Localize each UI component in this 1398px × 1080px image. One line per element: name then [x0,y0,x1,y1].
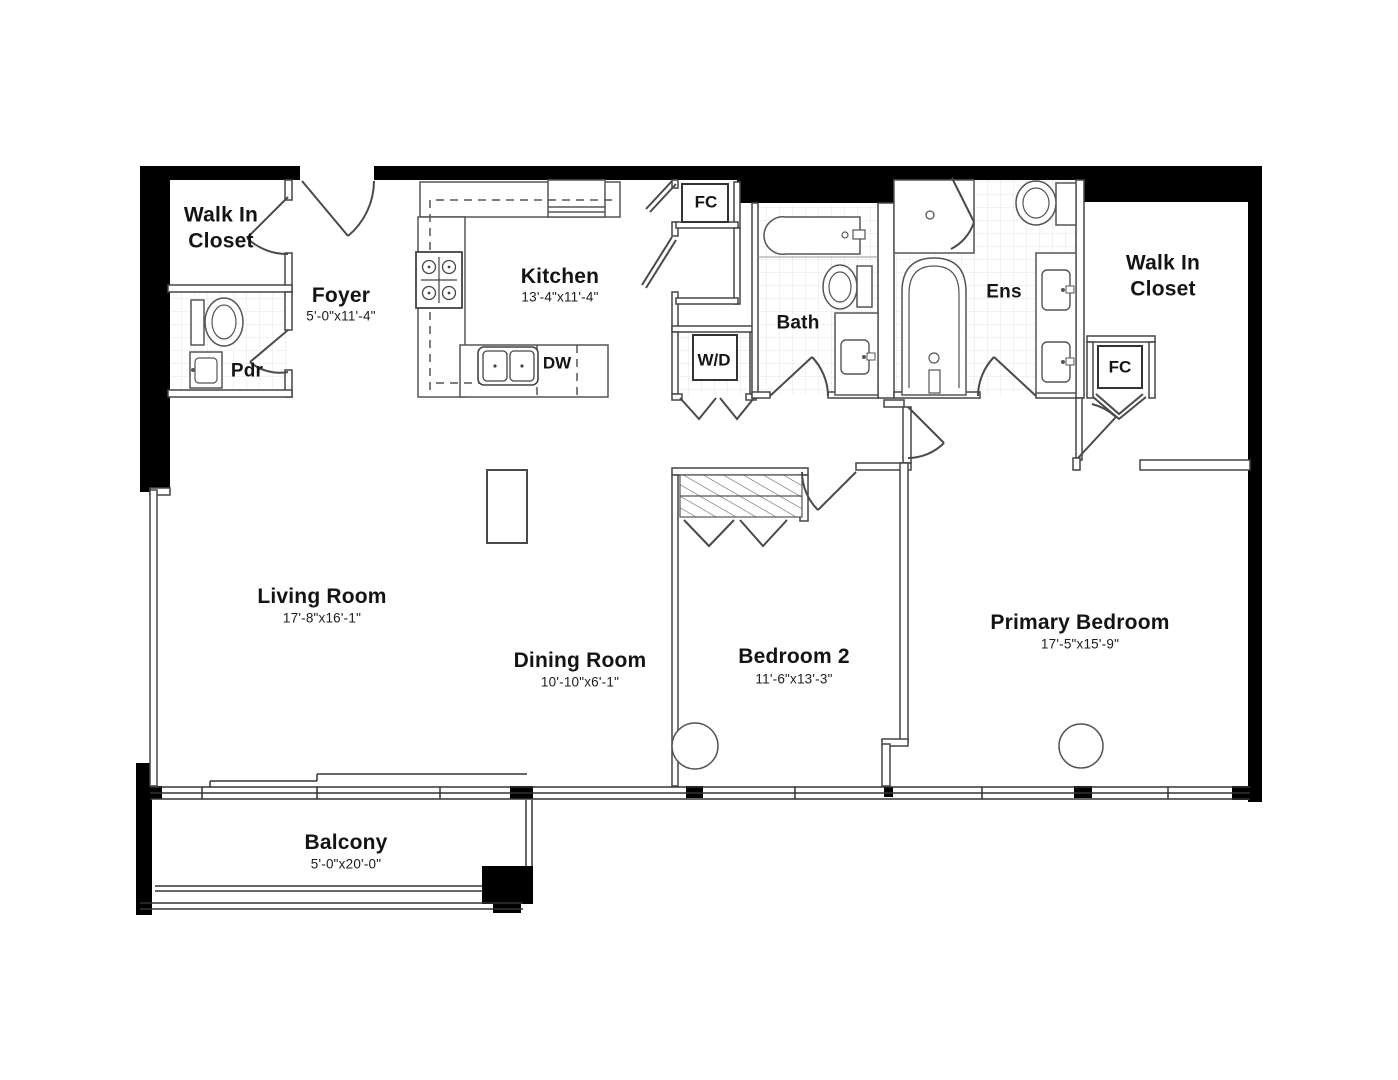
room-label-walk-in-closet-left: Walk In Closet [184,202,258,253]
room-dims-foyer: 5'-0"x11'-4" [306,309,375,324]
floor-plan: Walk In Closet Foyer 5'-0"x11'-4" Kitche… [0,0,1398,1080]
room-dims-primary-bedroom: 17'-5"x15'-9" [1041,637,1119,652]
room-label-powder-room: Pdr [231,359,263,382]
label-washer-dryer: W/D [697,351,730,372]
exterior-walls [136,166,1262,915]
label-dishwasher: DW [543,354,571,375]
room-dims-kitchen: 13'-4"x11'-4" [521,290,598,305]
toilet-icon [1056,183,1076,225]
room-label-dining-room: Dining Room [514,648,647,674]
room-label-ensuite: Ens [986,280,1021,303]
toilet-icon [191,300,204,345]
label-fan-coil-2: FC [1109,358,1132,379]
room-label-balcony: Balcony [304,830,387,856]
room-label-walk-in-closet-right: Walk In Closet [1126,250,1200,301]
label-fan-coil-1: FC [695,193,718,214]
room-label-foyer: Foyer [312,283,370,309]
toilet-icon [857,266,872,307]
kitchen-sink-icon [478,347,538,385]
bathtub-icon [764,217,860,254]
stove-icon [416,252,462,308]
entry-door [302,181,374,236]
room-label-bedroom-2: Bedroom 2 [738,644,850,670]
room-label-kitchen: Kitchen [521,264,599,290]
room-label-living-room: Living Room [257,584,386,610]
round-column-2 [1059,724,1103,768]
room-dims-balcony: 5'-0"x20'-0" [311,857,381,872]
column [487,470,527,543]
room-dims-dining-room: 10'-10"x6'-1" [541,675,619,690]
floor-plan-drawing [0,0,1398,1080]
bedroom2-closet [680,475,802,517]
room-label-primary-bedroom: Primary Bedroom [990,610,1169,636]
round-column-1 [672,723,718,769]
room-dims-bedroom-2: 11'-6"x13'-3" [755,672,832,687]
room-dims-living-room: 17'-8"x16'-1" [283,611,361,626]
room-label-bath: Bath [776,311,819,334]
